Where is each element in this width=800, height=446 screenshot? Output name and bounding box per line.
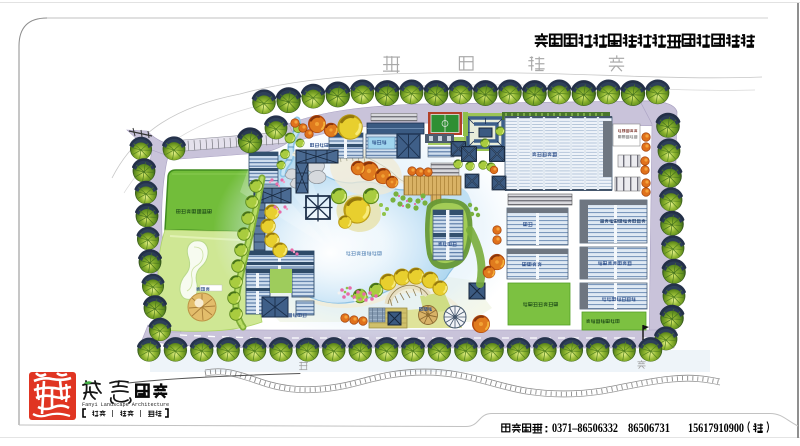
svg-text:0371–86506332: 0371–86506332 — [552, 421, 618, 435]
svg-text:Fanyi Landscape Architecture: Fanyi Landscape Architecture — [82, 402, 169, 408]
svg-text:15617910900: 15617910900 — [688, 421, 744, 435]
svg-text:86506731: 86506731 — [628, 421, 670, 435]
